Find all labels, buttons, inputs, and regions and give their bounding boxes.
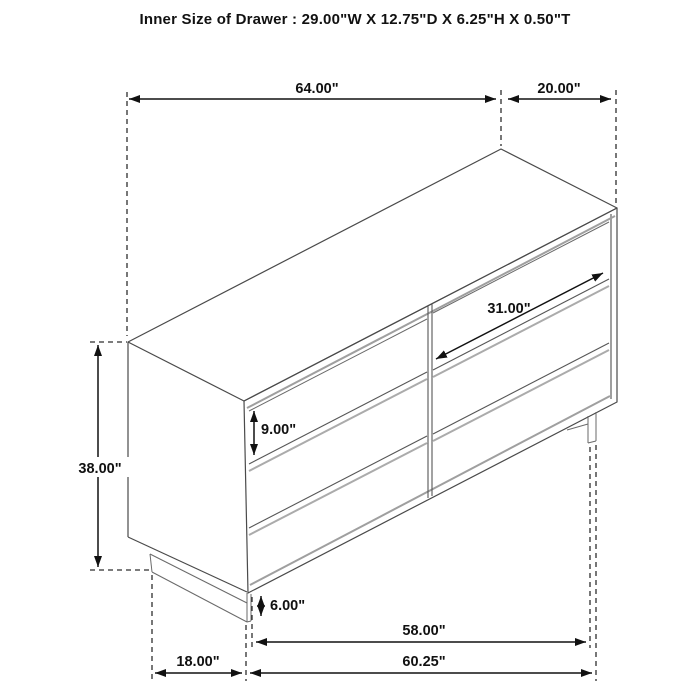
side-panel bbox=[128, 342, 247, 592]
page-title: Inner Size of Drawer : 29.00"W X 12.75"D… bbox=[139, 11, 570, 28]
dim-top-width: 64.00" bbox=[127, 81, 501, 336]
dim-base-width: 58.00" bbox=[256, 623, 586, 642]
dim-top-depth-label: 20.00" bbox=[537, 81, 580, 97]
dim-overall-height: 38.00" bbox=[70, 342, 150, 570]
dim-base-width-label: 58.00" bbox=[402, 623, 445, 639]
diagram-page: Inner Size of Drawer : 29.00"W X 12.75"D… bbox=[0, 0, 700, 700]
dim-drawer-height-label: 9.00" bbox=[261, 422, 296, 438]
dim-side-depth: 18.00" bbox=[155, 654, 242, 673]
dim-overall-width: 60.25" bbox=[250, 654, 592, 673]
dim-drawer-width-label: 31.00" bbox=[487, 301, 530, 317]
drawer-column-divider bbox=[428, 304, 432, 498]
bottom-edge-trim bbox=[250, 396, 610, 585]
front-panel bbox=[244, 208, 617, 593]
top-panel bbox=[128, 149, 617, 401]
right-drawer-column bbox=[433, 222, 609, 441]
base-plinth bbox=[150, 554, 251, 622]
left-drawer1-top bbox=[249, 319, 427, 411]
dim-base-height: 6.00" bbox=[261, 596, 305, 616]
dim-overall-width-label: 60.25" bbox=[402, 654, 445, 670]
bottom-extension-lines bbox=[152, 445, 596, 681]
dim-drawer-height: 9.00" bbox=[254, 411, 296, 455]
dim-overall-height-label: 38.00" bbox=[78, 461, 121, 477]
dim-top-depth: 20.00" bbox=[508, 81, 616, 203]
dresser-dimension-diagram: Inner Size of Drawer : 29.00"W X 12.75"D… bbox=[0, 0, 700, 700]
dim-drawer-width: 31.00" bbox=[436, 273, 603, 359]
dresser-drawing bbox=[128, 149, 617, 622]
dim-side-depth-label: 18.00" bbox=[176, 654, 219, 670]
dim-base-height-label: 6.00" bbox=[270, 598, 305, 614]
dim-top-width-label: 64.00" bbox=[295, 81, 338, 97]
